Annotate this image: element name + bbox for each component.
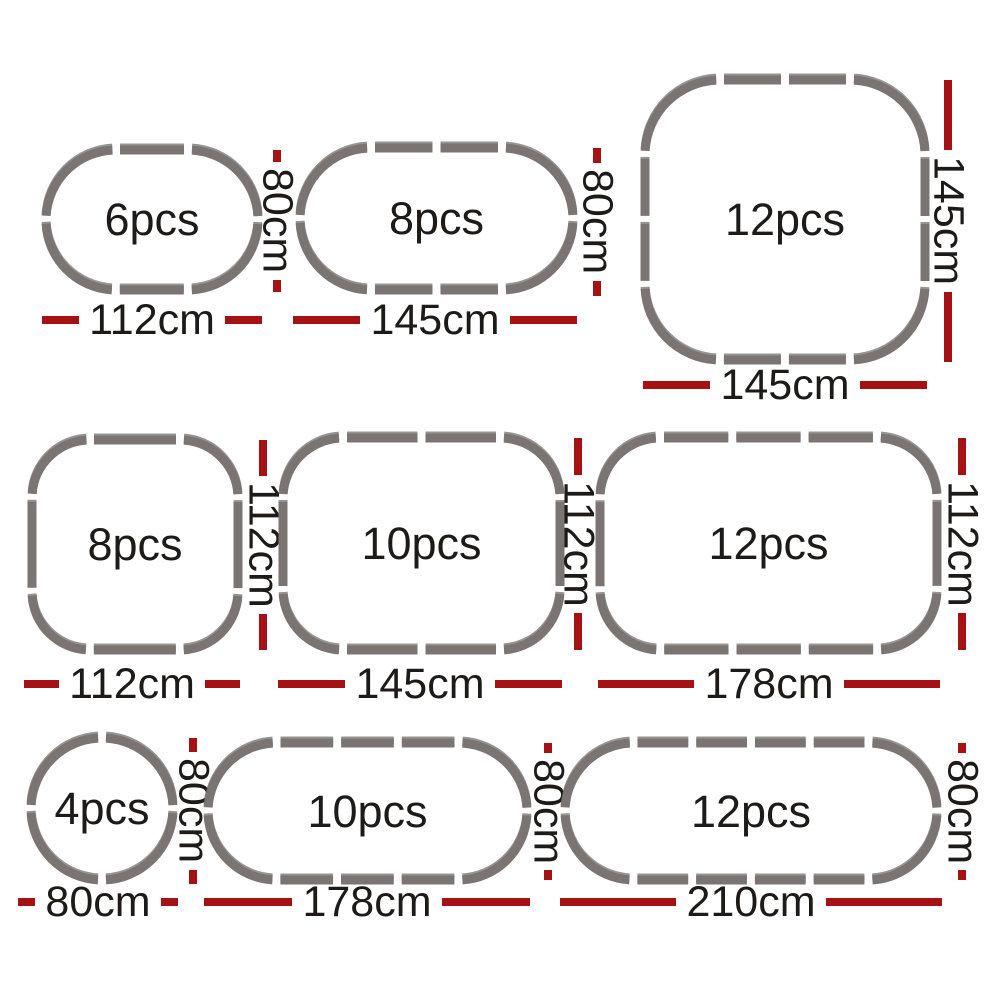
width-value: 112cm [69, 663, 195, 706]
width-value: 80cm [45, 881, 150, 924]
dimension-bar-bottom [958, 870, 966, 880]
height-dimension: 112cm [554, 438, 602, 650]
dimension-bar-top [958, 743, 966, 753]
width-dimension: 145cm [293, 295, 577, 345]
dimension-bar-top [189, 738, 197, 752]
pieces-count-label: 10pcs [208, 743, 527, 880]
width-value: 145cm [355, 663, 484, 706]
dimension-bar-top [273, 150, 281, 162]
dimension-bar-left [293, 316, 360, 324]
height-dimension: 112cm [938, 438, 986, 650]
dimension-bar-top [958, 438, 966, 475]
dimension-bar-right [510, 316, 577, 324]
width-value: 178cm [302, 881, 431, 924]
size-chart-diagram: 6pcs 112cm 80cm 8pcs 145cm 80cm [0, 0, 1000, 1000]
dimension-bar-top [574, 438, 582, 475]
height-value: 112cm [941, 481, 984, 607]
width-dimension: 145cm [643, 360, 927, 410]
dimension-bar-left [18, 898, 35, 906]
width-dimension: 112cm [24, 659, 240, 709]
dimension-bar-left [42, 316, 79, 324]
width-dimension: 145cm [278, 659, 562, 709]
width-dimension: 178cm [598, 659, 940, 709]
dimension-bar-bottom [544, 870, 552, 880]
dimension-bar-right [442, 898, 530, 906]
dimension-bar-bottom [189, 870, 197, 884]
height-value: 112cm [557, 481, 600, 607]
dimension-bar-top [944, 80, 952, 150]
dimension-bar-right [225, 316, 262, 324]
pieces-count-label: 8pcs [32, 440, 238, 650]
dimension-bar-top [544, 743, 552, 753]
pieces-count-label: 6pcs [46, 150, 258, 290]
dimension-bar-left [560, 898, 676, 906]
width-value: 145cm [370, 299, 499, 342]
dimension-bar-left [204, 898, 292, 906]
dimension-bar-bottom [273, 280, 281, 292]
dimension-bar-right [161, 898, 178, 906]
dimension-bar-bottom [593, 281, 601, 296]
pieces-count-label: 8pcs [300, 148, 573, 290]
dimension-bar-left [643, 381, 710, 389]
dimension-bar-left [598, 680, 694, 688]
width-value: 178cm [704, 663, 833, 706]
height-dimension: 145cm [924, 80, 972, 362]
height-value: 80cm [527, 759, 570, 864]
height-dimension: 80cm [253, 150, 301, 292]
width-value: 145cm [720, 364, 849, 407]
dimension-bar-top [593, 148, 601, 163]
height-value: 112cm [242, 482, 285, 608]
dimension-bar-bottom [958, 613, 966, 650]
width-dimension: 210cm [560, 877, 942, 927]
pieces-count-label: 12pcs [565, 743, 937, 880]
height-value: 145cm [927, 156, 970, 285]
width-value: 210cm [686, 881, 815, 924]
dimension-bar-right [844, 680, 940, 688]
height-dimension: 80cm [573, 148, 621, 296]
dimension-bar-bottom [259, 614, 267, 650]
height-value: 80cm [256, 168, 299, 273]
width-dimension: 112cm [42, 295, 262, 345]
dimension-bar-right [860, 381, 927, 389]
height-dimension: 80cm [938, 743, 986, 880]
width-dimension: 80cm [18, 877, 178, 927]
dimension-bar-top [259, 440, 267, 476]
dimension-bar-right [826, 898, 942, 906]
pieces-count-label: 12pcs [600, 438, 937, 650]
height-value: 80cm [576, 169, 619, 274]
dimension-bar-bottom [944, 292, 952, 362]
width-value: 112cm [89, 299, 215, 342]
pieces-count-label: 12pcs [645, 80, 925, 360]
dimension-bar-bottom [574, 613, 582, 650]
pieces-count-label: 10pcs [283, 438, 560, 650]
dimension-bar-right [205, 680, 240, 688]
pieces-count-label: 4pcs [31, 738, 173, 880]
dimension-bar-left [24, 680, 59, 688]
dimension-bar-left [278, 680, 345, 688]
dimension-bar-right [495, 680, 562, 688]
width-dimension: 178cm [204, 877, 530, 927]
height-value: 80cm [941, 759, 984, 864]
